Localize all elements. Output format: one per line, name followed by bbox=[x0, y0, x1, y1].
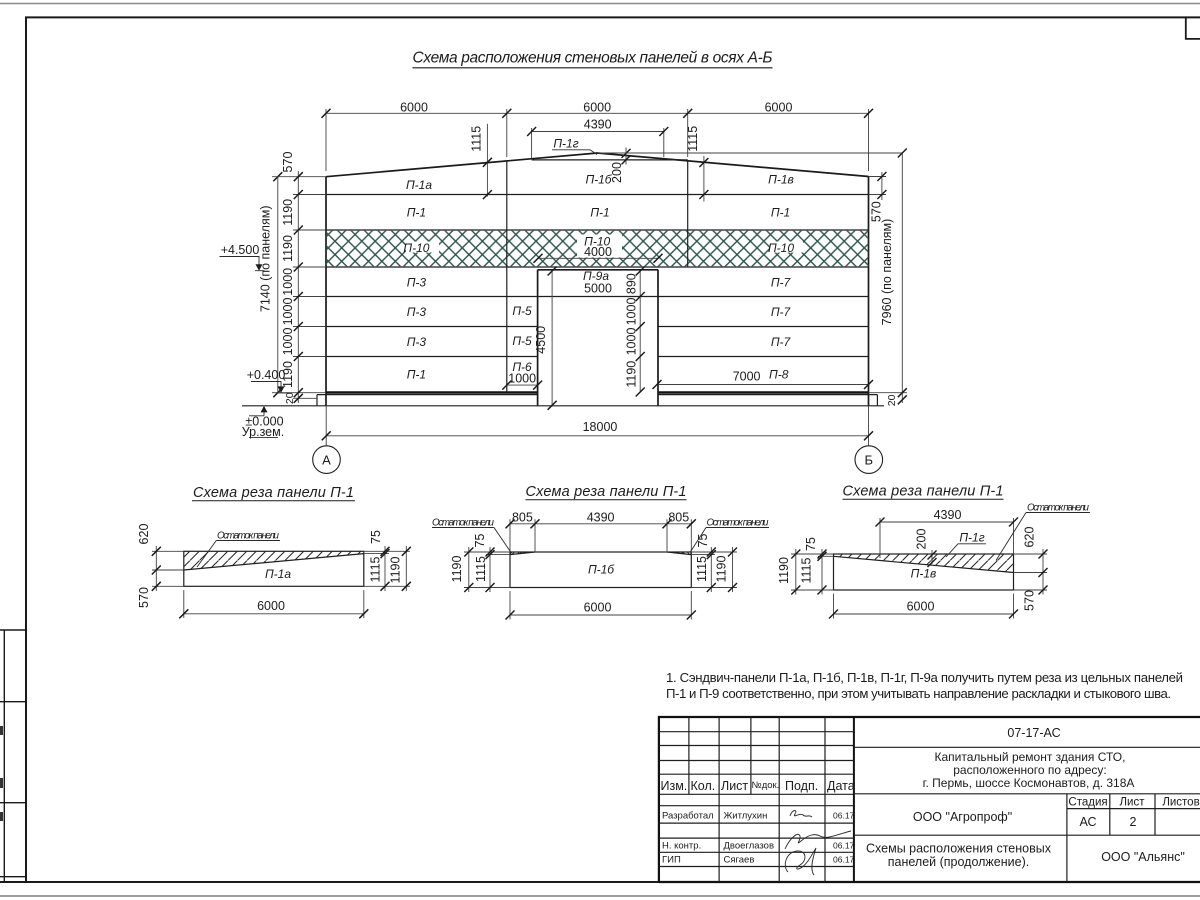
svg-text:20: 20 bbox=[886, 394, 898, 406]
svg-text:200: 200 bbox=[610, 162, 624, 183]
svg-text:75: 75 bbox=[804, 537, 818, 551]
svg-text:Стадия: Стадия bbox=[1068, 797, 1107, 809]
svg-text:Дата: Дата bbox=[827, 779, 855, 793]
svg-text:ГИП: ГИП bbox=[662, 855, 681, 866]
svg-text:П-1 и П-9 соответственно, при: П-1 и П-9 соответственно, при этом учиты… bbox=[666, 686, 1171, 701]
svg-text:4390: 4390 bbox=[934, 508, 962, 522]
svg-text:1000: 1000 bbox=[625, 298, 639, 326]
svg-text:570: 570 bbox=[281, 152, 295, 173]
svg-text:6000: 6000 bbox=[584, 601, 612, 615]
svg-text:1190: 1190 bbox=[625, 361, 639, 388]
svg-text:1115: 1115 bbox=[695, 556, 709, 582]
svg-text:А: А bbox=[322, 453, 331, 468]
svg-text:П-10: П-10 bbox=[584, 235, 610, 249]
svg-text:Н. контр.: Н. контр. bbox=[662, 841, 701, 852]
svg-text:Остаток панели: Остаток панели bbox=[432, 518, 495, 529]
svg-text:7960 (по панелям): 7960 (по панелям) bbox=[880, 219, 894, 326]
svg-text:П-1г: П-1г bbox=[553, 137, 578, 151]
svg-text:расположенного по адресу:: расположенного по адресу: bbox=[953, 763, 1107, 777]
svg-text:Листов: Листов bbox=[1162, 797, 1199, 809]
svg-text:6000: 6000 bbox=[907, 600, 935, 614]
svg-text:1000: 1000 bbox=[281, 268, 295, 296]
svg-text:Б: Б bbox=[865, 453, 874, 468]
svg-text:75: 75 bbox=[696, 534, 710, 548]
svg-text:П-3: П-3 bbox=[407, 275, 427, 289]
svg-text:890: 890 bbox=[625, 273, 639, 294]
svg-text:П-1в: П-1в bbox=[768, 173, 794, 187]
svg-text:620: 620 bbox=[137, 524, 151, 545]
svg-text:1000: 1000 bbox=[281, 298, 295, 326]
svg-text:Лист: Лист bbox=[1120, 797, 1146, 809]
svg-text:200: 200 bbox=[915, 529, 929, 550]
svg-text:6000: 6000 bbox=[257, 599, 285, 613]
svg-text:П-7: П-7 bbox=[771, 275, 792, 289]
svg-text:П-1: П-1 bbox=[407, 206, 426, 220]
svg-text:Изм.: Изм. bbox=[661, 779, 688, 793]
svg-text:№док.: №док. bbox=[752, 780, 780, 791]
svg-text:06.17: 06.17 bbox=[833, 855, 855, 865]
svg-text:7140 (по панелям): 7140 (по панелям) bbox=[259, 205, 273, 312]
svg-text:Схема реза панели П-1: Схема реза панели П-1 bbox=[843, 484, 1004, 500]
svg-text:П-1б: П-1б bbox=[588, 563, 615, 577]
svg-text:Остаток панели: Остаток панели bbox=[1027, 503, 1090, 514]
svg-text:6000: 6000 bbox=[400, 101, 428, 115]
svg-text:П-1б: П-1б bbox=[585, 173, 612, 187]
svg-text:П-1а: П-1а bbox=[265, 567, 291, 581]
svg-text:5000: 5000 bbox=[584, 282, 612, 296]
svg-text:4500: 4500 bbox=[534, 326, 548, 354]
svg-text:2: 2 bbox=[1130, 815, 1137, 829]
svg-text:1115: 1115 bbox=[686, 126, 700, 152]
svg-text:П-3: П-3 bbox=[407, 335, 427, 349]
svg-text:1190: 1190 bbox=[450, 556, 464, 583]
svg-text:20: 20 bbox=[284, 392, 296, 404]
svg-text:Капитальный ремонт здания СТО,: Капитальный ремонт здания СТО, bbox=[935, 750, 1126, 764]
svg-text:4390: 4390 bbox=[584, 118, 612, 132]
svg-text:Схема реза панели П-1: Схема реза панели П-1 bbox=[193, 485, 354, 501]
svg-text:Разработал: Разработал bbox=[662, 811, 714, 822]
svg-text:П-6: П-6 bbox=[512, 360, 532, 374]
svg-text:1190: 1190 bbox=[777, 557, 791, 584]
svg-text:г. Пермь, шоссе Космонавтов, д: г. Пермь, шоссе Космонавтов, д. 318А bbox=[923, 776, 1135, 790]
svg-text:П-7: П-7 bbox=[771, 335, 792, 349]
svg-text:+0.400: +0.400 bbox=[247, 368, 286, 382]
svg-text:П-1г: П-1г bbox=[959, 531, 984, 545]
svg-text:75: 75 bbox=[473, 534, 487, 548]
svg-text:1. Сэндвич-панели П-1а, П-1б,: 1. Сэндвич-панели П-1а, П-1б, П-1в, П-1г… bbox=[666, 670, 1183, 685]
svg-text:панелей (продолжение).: панелей (продолжение). bbox=[888, 855, 1029, 869]
svg-text:Схемы расположения стеновых: Схемы расположения стеновых bbox=[866, 842, 1052, 856]
svg-text:620: 620 bbox=[1023, 527, 1037, 548]
svg-text:1115: 1115 bbox=[369, 556, 383, 582]
svg-text:6000: 6000 bbox=[583, 101, 611, 115]
svg-text:П-1: П-1 bbox=[771, 206, 790, 220]
svg-text:П-10: П-10 bbox=[403, 241, 429, 255]
svg-text:570: 570 bbox=[1023, 590, 1037, 611]
svg-text:Схема расположения стеновых па: Схема расположения стеновых панелей в ос… bbox=[413, 50, 773, 67]
svg-text:570: 570 bbox=[137, 587, 151, 608]
svg-text:1115: 1115 bbox=[474, 556, 488, 582]
svg-text:1190: 1190 bbox=[281, 199, 295, 226]
svg-text:АС: АС bbox=[1079, 815, 1096, 829]
svg-text:6000: 6000 bbox=[765, 101, 793, 115]
svg-text:Подп.: Подп. bbox=[785, 779, 818, 793]
svg-text:ООО "Агропроф": ООО "Агропроф" bbox=[913, 810, 1012, 824]
svg-text:П-5: П-5 bbox=[512, 304, 532, 318]
svg-text:06.17: 06.17 bbox=[833, 841, 855, 851]
svg-text:Остаток панели: Остаток панели bbox=[707, 518, 770, 529]
svg-text:ООО "Альянс": ООО "Альянс" bbox=[1101, 850, 1185, 864]
svg-text:4390: 4390 bbox=[587, 511, 615, 525]
svg-text:Сягаев: Сягаев bbox=[724, 855, 755, 866]
svg-text:П-7: П-7 bbox=[771, 305, 792, 319]
svg-text:Остаток панели: Остаток панели bbox=[217, 531, 280, 542]
svg-text:+4.500: +4.500 bbox=[221, 243, 260, 257]
svg-text:7000: 7000 bbox=[733, 370, 761, 384]
svg-text:П-1а: П-1а bbox=[406, 178, 432, 192]
svg-text:1115: 1115 bbox=[470, 126, 484, 152]
svg-text:1000: 1000 bbox=[625, 328, 639, 356]
svg-text:805: 805 bbox=[668, 511, 689, 525]
svg-text:06.17: 06.17 bbox=[833, 811, 855, 821]
svg-text:805: 805 bbox=[512, 511, 533, 525]
svg-text:П-1: П-1 bbox=[407, 368, 426, 382]
svg-text:Двоеглазов: Двоеглазов bbox=[724, 841, 775, 852]
svg-text:1190: 1190 bbox=[281, 235, 295, 262]
svg-text:П-1: П-1 bbox=[590, 206, 609, 220]
svg-text:75: 75 bbox=[369, 530, 383, 544]
svg-text:Житлухин: Житлухин bbox=[724, 811, 768, 822]
svg-text:Лист: Лист bbox=[721, 779, 748, 793]
svg-text:07-17-АС: 07-17-АС bbox=[1007, 726, 1060, 740]
svg-text:1115: 1115 bbox=[799, 557, 813, 583]
svg-text:П-1в: П-1в bbox=[911, 567, 937, 581]
svg-text:Схема реза панели П-1: Схема реза панели П-1 bbox=[526, 484, 687, 500]
svg-text:П-5: П-5 bbox=[512, 334, 532, 348]
svg-text:Ур.зем.: Ур.зем. bbox=[242, 425, 284, 439]
svg-text:Кол.: Кол. bbox=[691, 779, 716, 793]
svg-text:1190: 1190 bbox=[389, 557, 403, 584]
svg-text:1190: 1190 bbox=[715, 556, 729, 583]
svg-text:1000: 1000 bbox=[281, 328, 295, 356]
svg-text:П-8: П-8 bbox=[769, 368, 789, 382]
svg-text:П-10: П-10 bbox=[768, 241, 794, 255]
svg-text:18000: 18000 bbox=[583, 420, 618, 434]
svg-text:П-3: П-3 bbox=[407, 305, 427, 319]
